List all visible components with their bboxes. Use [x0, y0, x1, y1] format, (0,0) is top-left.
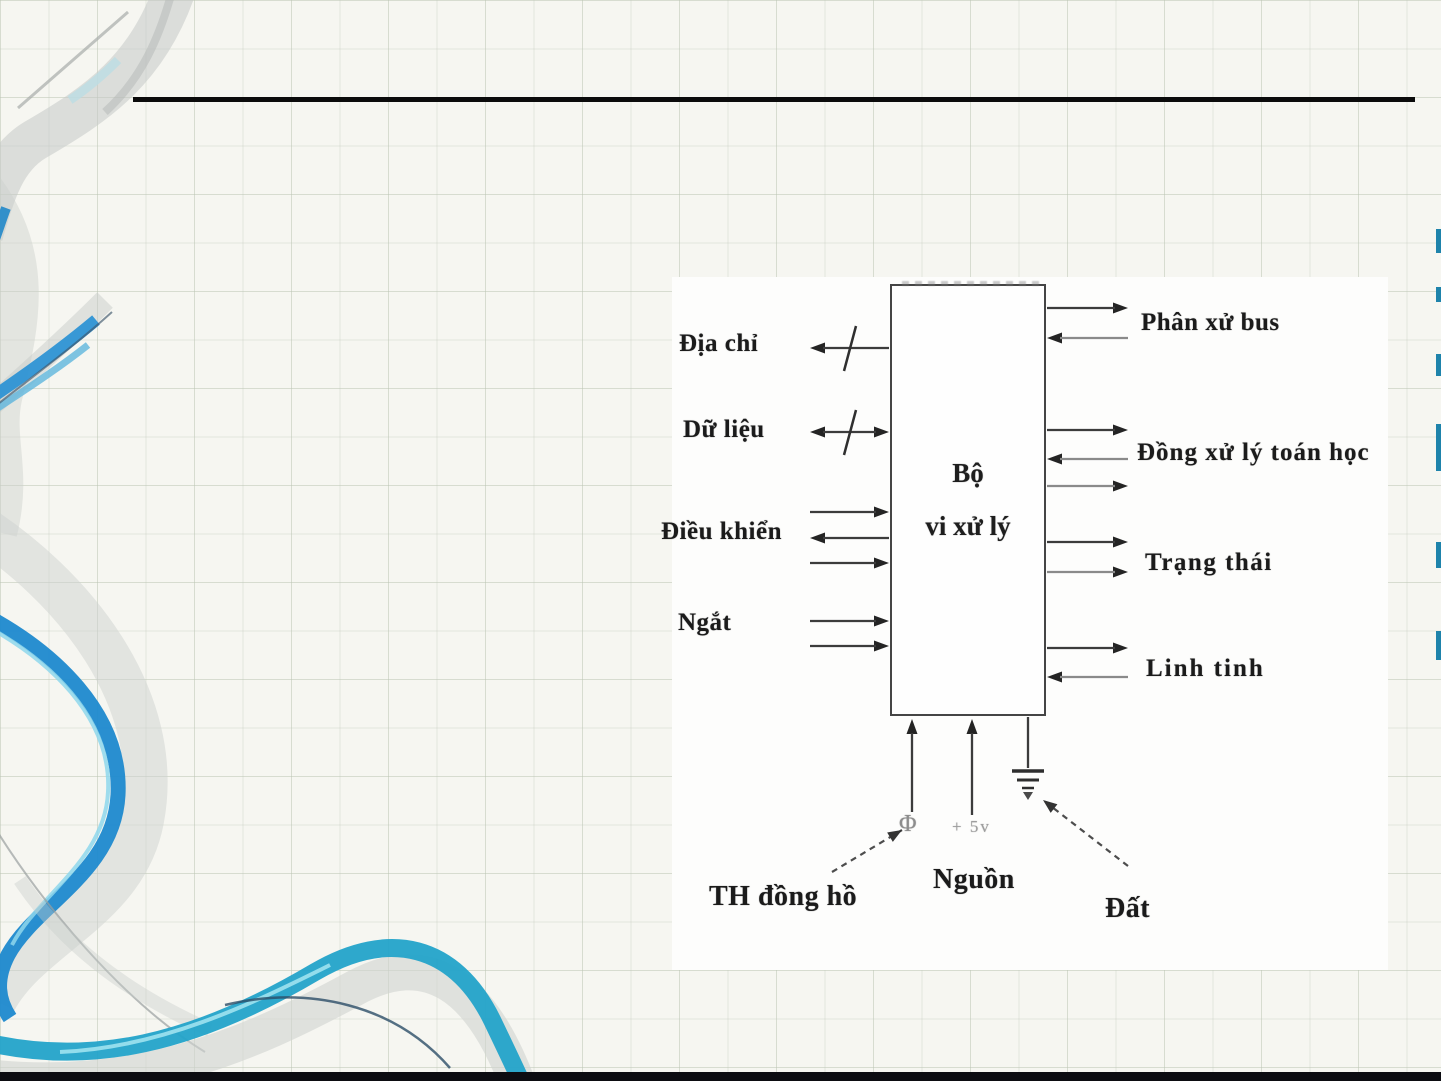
pin-label-clock: TH đồng hồ [709, 881, 857, 913]
arrowhead [1047, 672, 1062, 683]
bus-label-status: Trạng thái [1145, 549, 1273, 578]
arrowhead [810, 427, 825, 438]
edge-tick [1436, 424, 1441, 471]
arrowhead [874, 641, 889, 652]
bottom-border-bar [0, 1072, 1441, 1081]
arrowhead [810, 343, 825, 354]
bus-label-misc: Linh tinh [1146, 655, 1265, 684]
arrowhead [810, 533, 825, 544]
ground-pointer-arrow [1043, 800, 1128, 866]
pin-label-power: Nguồn [933, 864, 1015, 896]
edge-tick [1436, 287, 1441, 302]
arrowhead [1047, 333, 1062, 344]
clock-phi-symbol: Φ [899, 811, 917, 838]
power-5v-value: + 5v [952, 817, 991, 837]
edge-tick [1436, 229, 1441, 253]
bus-label-interrupt: Ngắt [678, 609, 731, 638]
arrowhead [874, 507, 889, 518]
arrowhead [1113, 567, 1128, 578]
arrowhead [967, 719, 978, 734]
ground-symbol-tip [1023, 792, 1033, 800]
arrowhead [874, 616, 889, 627]
edge-tick [1436, 354, 1441, 376]
bus-label-coprocessor: Đồng xử lý toán học [1137, 439, 1370, 468]
arrowhead [1113, 643, 1128, 654]
arrowhead [1113, 481, 1128, 492]
arrowhead [907, 719, 918, 734]
pin-label-ground: Đất [1105, 893, 1150, 925]
arrowhead [874, 558, 889, 569]
arrowhead [1113, 303, 1128, 314]
arrowhead [1043, 800, 1057, 813]
edge-tick [1436, 631, 1441, 660]
arrowhead [874, 427, 889, 438]
bus-label-arbitration: Phân xử bus [1141, 309, 1280, 338]
bus-label-address: Địa chỉ [679, 330, 758, 359]
arrowhead [1113, 537, 1128, 548]
arrowhead [1047, 454, 1062, 465]
edge-tick [1436, 542, 1441, 568]
arrowhead [1113, 425, 1128, 436]
bus-label-control: Điều khiển [661, 518, 782, 547]
slide: Bộ vi xử lý Địa chỉ Dữ liệu Điều khiển N… [0, 0, 1441, 1081]
bus-label-data: Dữ liệu [683, 416, 765, 445]
